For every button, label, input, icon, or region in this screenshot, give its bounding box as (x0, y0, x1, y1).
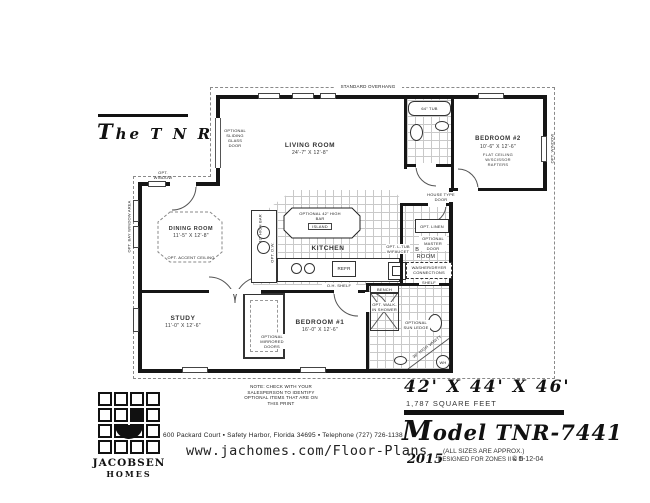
island-label-group: OPTIONAL 42" HIGH BAR ISLAND (288, 211, 352, 230)
optional-front-window (148, 181, 166, 187)
wall-bath2-left (404, 99, 407, 169)
page-title: The T N R (97, 119, 213, 144)
room-name: STUDY (170, 315, 195, 322)
sink-bowl (304, 263, 315, 274)
window (300, 367, 326, 373)
brand-name: JACOBSEN HOMES (86, 457, 172, 479)
window (182, 367, 208, 373)
address-line: 600 Packard Court ▪ Safety Harbor, Flori… (163, 432, 403, 439)
bay-window (133, 226, 139, 248)
wall-bedroom2-left (451, 95, 454, 191)
masterbath-door-opening (365, 292, 370, 312)
bathtub: 64" TUB (408, 101, 451, 116)
window (292, 93, 314, 99)
sliding-glass-door-label: OPTIONAL SLIDING GLASS DOOR (221, 128, 249, 148)
optional-master-door-label: OPTIONAL MASTER DOOR (419, 236, 447, 251)
shelf-label: SHELF (419, 280, 439, 285)
wardrobe-closet (243, 293, 285, 359)
walk-in-shower (370, 293, 399, 331)
mirrored-doors-label: OPTIONAL MIRRORED DOORS (255, 334, 289, 349)
toilet (410, 124, 423, 141)
bedroom2-door-opening (458, 187, 478, 192)
brand-line2: HOMES (86, 469, 172, 479)
zones-note: DESIGNED FOR ZONES II & III (438, 457, 523, 463)
model-rule (404, 410, 564, 415)
bay-window-area-label: OPT. BAY WINDOW AREA (127, 195, 132, 259)
accent-ceiling-label: OPT. ACCENT CEILING (163, 255, 219, 260)
toilet (428, 314, 442, 332)
square-feet: 1,787 SQUARE FEET (406, 399, 497, 408)
dining-room-label: DINING ROOM 11'-5" X 12'-8" (162, 226, 220, 239)
window (541, 136, 547, 162)
room-name: LIVING ROOM (285, 142, 335, 149)
room-dims: 11'-5" X 12'-8" (162, 233, 220, 239)
standard-overhang-label: STANDARD OVERHANG (334, 84, 402, 90)
title-rule (98, 114, 188, 117)
brand-line1: JACOBSEN (86, 457, 172, 469)
bedroom1-label: BEDROOM #1 16'-0" X 12'-6" (283, 319, 357, 333)
island-label: ISLAND (308, 223, 332, 230)
room-dims: 24'-7" X 12'-8" (262, 150, 358, 156)
bedroom1-door-opening (334, 289, 358, 294)
double-door-opening (209, 289, 261, 294)
bedroom2-label: BEDROOM #2 10'-6" X 12'-6" FLAT CEILING … (456, 136, 540, 167)
website-url: www.jachomes.com/Floor-Plans (186, 443, 428, 459)
salesperson-note: NOTE: CHECK WITH YOUR SALESPERSON TO IDE… (241, 384, 321, 407)
water-heater: WH (436, 355, 450, 369)
room-dims: 10'-6" X 12'-6" (456, 144, 540, 150)
room-name: BEDROOM #1 (296, 319, 345, 326)
high-bar-label: 42" HIGH BAR (258, 203, 263, 255)
model-number: Model TNR-7441 (402, 416, 623, 447)
front-door-opening (170, 181, 196, 187)
sun-ledge-label: OPTIONAL SUN LEDGE (402, 320, 430, 330)
window (133, 308, 139, 332)
wall-right-lower (449, 188, 453, 373)
sink-bowl (291, 263, 302, 274)
window (478, 93, 504, 99)
sizes-approx-note: (ALL SIZES ARE APPROX.) (443, 448, 524, 455)
shower-bench: BENCH (370, 285, 399, 293)
jacobsen-logo-icon (98, 392, 160, 454)
shower-label: OPT. WALK-IN SHOWER (371, 302, 398, 312)
overhead-shelf-label: O.H. SHELF (322, 283, 356, 288)
window (258, 93, 280, 99)
living-room-label: LIVING ROOM 24'-7" X 12'-8" (262, 142, 358, 156)
study-label: STUDY 11'-0" X 12'-6" (152, 315, 214, 329)
overhang-dash-right (554, 87, 555, 379)
sizes-heading: 42' X 44' X 46' (404, 377, 571, 397)
dishwasher-label: OPT. D.W. (270, 239, 275, 267)
window (320, 93, 336, 99)
opt-window-label-right: OPT. WINDOW (550, 133, 555, 165)
copyright-date: © 5-12-04 (512, 456, 543, 463)
bath-sink (394, 356, 407, 365)
room-dims: 11'-0" X 12'-6" (152, 323, 214, 329)
island-bar-label: OPTIONAL 42" HIGH BAR (298, 211, 342, 221)
bath2-door-opening (416, 163, 436, 168)
bath-sink (435, 121, 449, 131)
linen-closet: OPT. LINEN (415, 219, 449, 233)
bay-window (133, 200, 139, 222)
kitchen-label: KITCHEN (306, 245, 350, 253)
washer-dryer-connections: WASHER/DRYER CONNECTIONS (406, 262, 452, 279)
laundry-tub (388, 262, 406, 280)
laundry-tub-label: OPT. L-TUB W/FAUCET (386, 244, 410, 254)
house-door-opening (428, 202, 446, 207)
room-name: DINING ROOM (169, 226, 214, 232)
room-dims: 16'-0" X 12'-6" (283, 327, 357, 333)
ceiling-note: FLAT CEILING W/SCISSOR RAFTERS (475, 152, 521, 167)
room-name: BEDROOM #2 (475, 136, 521, 142)
refrigerator: REFR (332, 261, 356, 277)
house-type-door-label: HOUSE TYPE DOOR (426, 192, 456, 202)
opt-window-label-front: OPT. WINDOW (152, 170, 174, 180)
floor-plan-page: The T N R STANDARD OVERHANG (0, 0, 650, 503)
